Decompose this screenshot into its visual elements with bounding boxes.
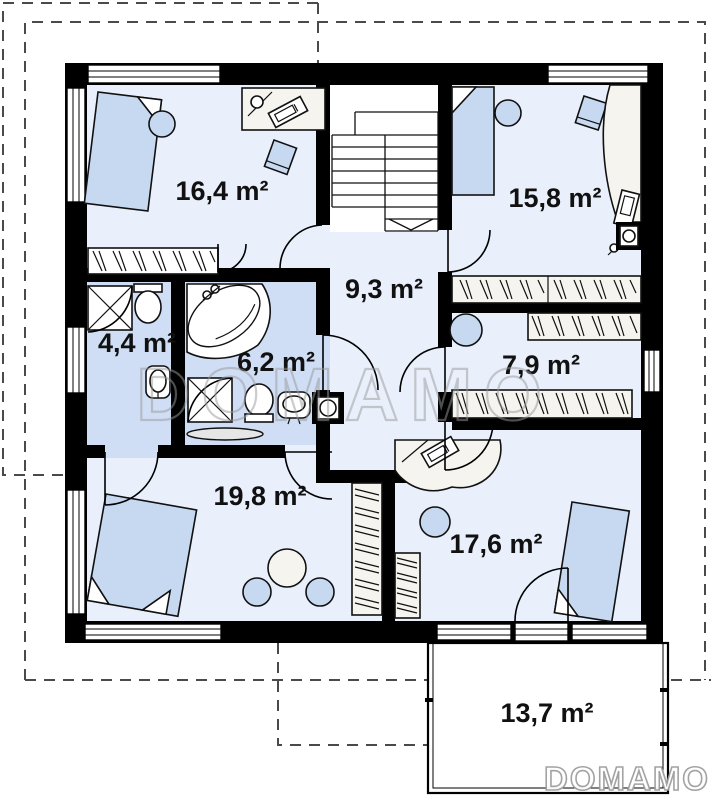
desk-icon [242,88,325,130]
wardrobe-icon [452,276,641,303]
label-hall: 9,3 m² [345,274,423,304]
window-right [644,350,660,392]
stool-icon [243,578,271,606]
watermark-center: DOMAMO [136,353,553,436]
window-left-3 [67,490,85,614]
shelf-icon [395,553,420,618]
stool-icon [306,578,334,606]
label-bedroom-bottom-right: 17,6 m² [449,529,542,559]
side-table-icon [149,111,175,137]
tv-unit-icon [616,222,642,250]
window-bottom-left [85,624,221,640]
floor-plan: 16,4 m² 15,8 m² 9,3 m² 4,4 m² 6,2 m² 7,9… [0,0,711,800]
terrace-door-glазing [515,623,568,641]
bed-icon [84,92,161,211]
shower-icon [88,286,132,332]
bed-icon [452,87,494,195]
window-top-left [88,65,220,83]
table-icon [268,549,306,587]
side-table-icon [495,100,521,126]
double-bed-icon [87,494,196,616]
clothes-rack-icon [528,313,641,340]
floor-plan-page: 16,4 m² 15,8 m² 9,3 m² 4,4 m² 6,2 m² 7,9… [0,0,711,800]
window-bottom-right-1 [437,624,511,640]
window-left-2 [67,327,85,393]
watermark-corner-logo: DOMAMO [544,760,710,797]
window-bottom-right-2 [572,624,647,640]
label-bedroom-bottom-left: 19,8 m² [213,481,306,511]
label-bedroom-top-left: 16,4 m² [175,176,268,206]
window-top-right [548,65,648,83]
window-left-1 [67,88,85,202]
toilet-icon [134,284,162,323]
label-terrace: 13,7 m² [500,698,593,728]
label-bedroom-top-right: 15,8 m² [508,183,601,213]
stool-icon [450,314,482,346]
wardrobe-icon [352,483,382,615]
stool-icon [420,507,450,537]
